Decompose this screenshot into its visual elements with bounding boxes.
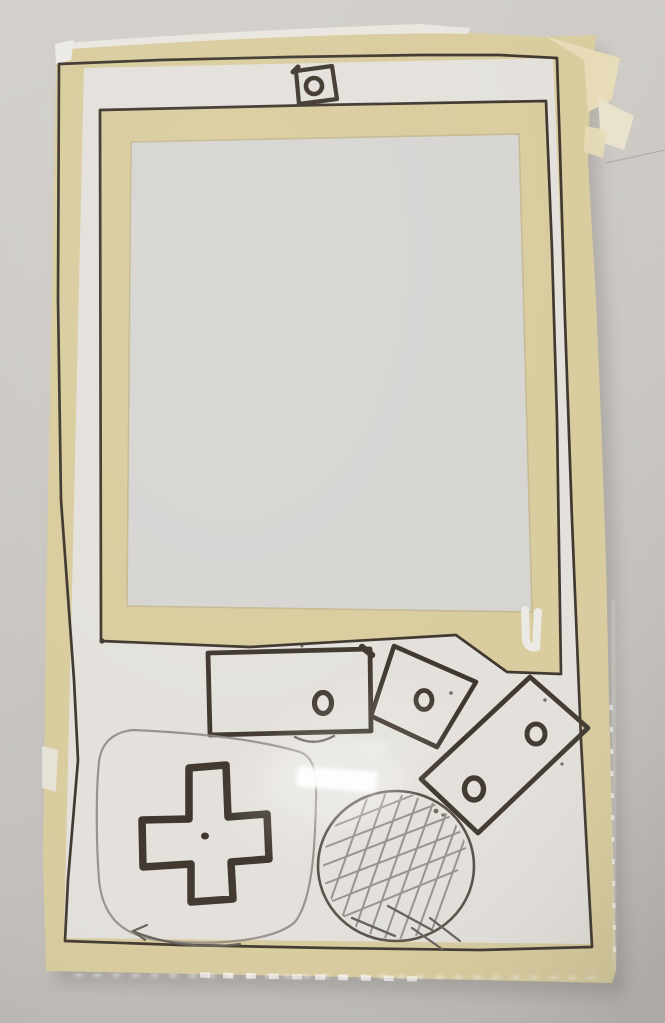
prototype-photo-canvas — [0, 0, 665, 1023]
photo-of-paper-prototype — [0, 0, 665, 1023]
lighting-vignette — [0, 0, 665, 1023]
